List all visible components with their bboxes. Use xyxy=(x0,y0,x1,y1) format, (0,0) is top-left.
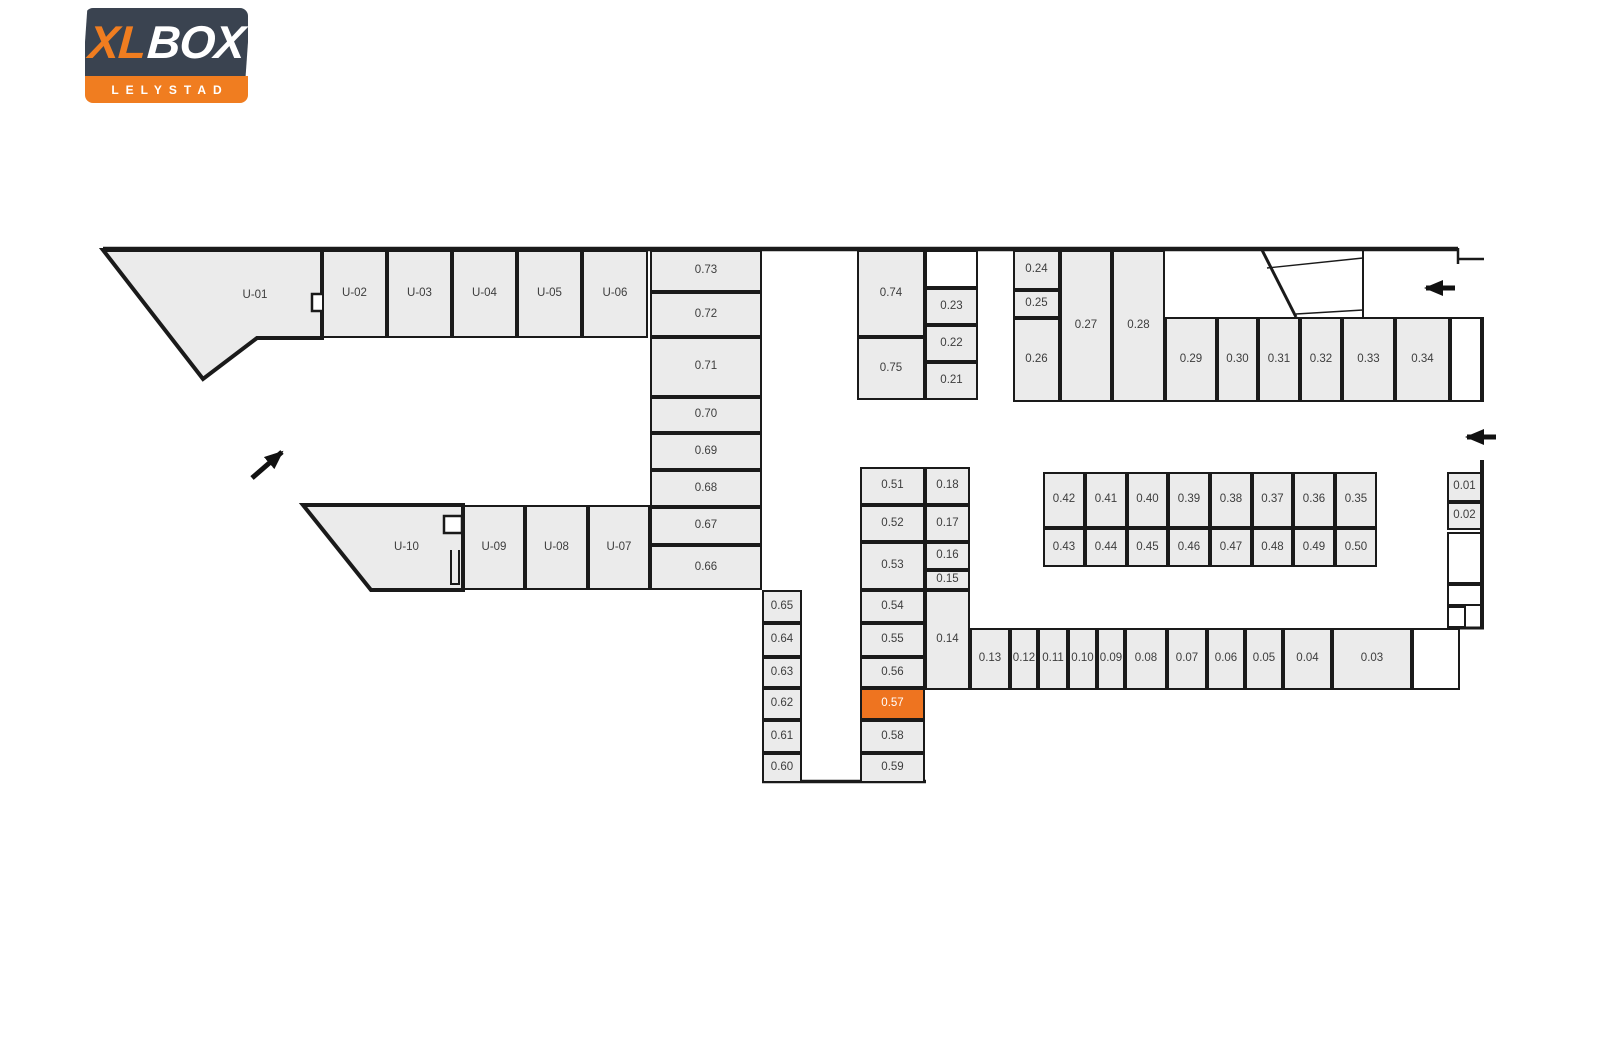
unit-label: 0.45 xyxy=(1136,542,1158,554)
unit-0.08[interactable]: 0.08 xyxy=(1125,628,1167,690)
unit-label: 0.48 xyxy=(1261,542,1283,554)
unit-label: 0.51 xyxy=(881,480,903,492)
unit-label: 0.44 xyxy=(1095,542,1117,554)
unit-label: 0.62 xyxy=(771,698,793,710)
corridor-cell xyxy=(925,250,978,288)
unit-0.15[interactable]: 0.15 xyxy=(925,570,970,590)
unit-0.61[interactable]: 0.61 xyxy=(762,720,802,753)
unit-label: 0.69 xyxy=(695,446,717,458)
unit-label: 0.49 xyxy=(1303,542,1325,554)
unit-label: U-07 xyxy=(607,542,632,554)
unit-label: 0.53 xyxy=(881,560,903,572)
corridor-cell xyxy=(1412,628,1460,690)
unit-label: 0.70 xyxy=(695,409,717,421)
unit-0.22[interactable]: 0.22 xyxy=(925,325,978,362)
unit-label: 0.29 xyxy=(1180,354,1202,366)
unit-U-04[interactable]: U-04 xyxy=(452,250,517,338)
unit-0.10[interactable]: 0.10 xyxy=(1068,628,1097,690)
unit-0.69[interactable]: 0.69 xyxy=(650,433,762,470)
unit-label: 0.39 xyxy=(1178,494,1200,506)
unit-U-01[interactable]: U-01 xyxy=(190,252,320,340)
unit-0.09[interactable]: 0.09 xyxy=(1097,628,1125,690)
unit-label: 0.27 xyxy=(1075,320,1097,332)
unit-0.75[interactable]: 0.75 xyxy=(857,337,925,400)
unit-0.27[interactable]: 0.27 xyxy=(1060,250,1112,402)
unit-0.60[interactable]: 0.60 xyxy=(762,753,802,783)
unit-0.51[interactable]: 0.51 xyxy=(860,467,925,505)
unit-0.38[interactable]: 0.38 xyxy=(1210,472,1252,528)
unit-label: 0.58 xyxy=(881,731,903,743)
unit-label: U-05 xyxy=(537,288,562,300)
unit-0.65[interactable]: 0.65 xyxy=(762,590,802,623)
unit-label: 0.64 xyxy=(771,634,793,646)
unit-label: 0.55 xyxy=(881,634,903,646)
unit-label: 0.35 xyxy=(1345,494,1367,506)
unit-0.16[interactable]: 0.16 xyxy=(925,542,970,570)
unit-label: 0.15 xyxy=(936,574,958,586)
unit-0.52[interactable]: 0.52 xyxy=(860,505,925,542)
unit-0.59[interactable]: 0.59 xyxy=(860,753,925,783)
unit-0.35[interactable]: 0.35 xyxy=(1335,472,1377,528)
unit-0.33[interactable]: 0.33 xyxy=(1342,317,1395,402)
unit-label: 0.32 xyxy=(1310,354,1332,366)
unit-U-08[interactable]: U-08 xyxy=(525,505,588,590)
unit-label: 0.01 xyxy=(1453,481,1475,493)
unit-label: 0.50 xyxy=(1345,542,1367,554)
unit-0.50[interactable]: 0.50 xyxy=(1335,528,1377,567)
unit-0.44[interactable]: 0.44 xyxy=(1085,528,1127,567)
unit-U-03[interactable]: U-03 xyxy=(387,250,452,338)
unit-label: 0.31 xyxy=(1268,354,1290,366)
unit-0.39[interactable]: 0.39 xyxy=(1168,472,1210,528)
unit-label: 0.16 xyxy=(936,550,958,562)
unit-0.05[interactable]: 0.05 xyxy=(1245,628,1283,690)
unit-label: U-02 xyxy=(342,288,367,300)
unit-0.49[interactable]: 0.49 xyxy=(1293,528,1335,567)
unit-label: 0.37 xyxy=(1261,494,1283,506)
unit-0.24[interactable]: 0.24 xyxy=(1013,250,1060,290)
unit-label: 0.22 xyxy=(940,338,962,350)
unit-label: 0.52 xyxy=(881,518,903,530)
unit-label: 0.26 xyxy=(1025,354,1047,366)
unit-label: 0.13 xyxy=(979,653,1001,665)
unit-0.06[interactable]: 0.06 xyxy=(1207,628,1245,690)
unit-0.30[interactable]: 0.30 xyxy=(1217,317,1258,402)
unit-0.40[interactable]: 0.40 xyxy=(1127,472,1168,528)
unit-label: 0.67 xyxy=(695,520,717,532)
unit-label: U-01 xyxy=(243,290,268,302)
unit-0.43[interactable]: 0.43 xyxy=(1043,528,1085,567)
unit-label: U-10 xyxy=(394,542,419,554)
unit-0.28[interactable]: 0.28 xyxy=(1112,250,1165,402)
unit-0.55[interactable]: 0.55 xyxy=(860,623,925,657)
unit-0.34[interactable]: 0.34 xyxy=(1395,317,1450,402)
corridor-cell xyxy=(1450,317,1482,402)
unit-0.26[interactable]: 0.26 xyxy=(1013,318,1060,402)
unit-0.53[interactable]: 0.53 xyxy=(860,542,925,590)
unit-0.46[interactable]: 0.46 xyxy=(1168,528,1210,567)
unit-label: 0.71 xyxy=(695,361,717,373)
unit-label: U-04 xyxy=(472,288,497,300)
unit-0.62[interactable]: 0.62 xyxy=(762,688,802,720)
unit-0.68[interactable]: 0.68 xyxy=(650,470,762,507)
unit-0.58[interactable]: 0.58 xyxy=(860,720,925,753)
unit-U-02[interactable]: U-02 xyxy=(322,250,387,338)
unit-0.29[interactable]: 0.29 xyxy=(1165,317,1217,402)
unit-label: 0.63 xyxy=(771,667,793,679)
unit-label: 0.11 xyxy=(1042,653,1064,665)
unit-label: 0.40 xyxy=(1136,494,1158,506)
unit-label: 0.74 xyxy=(880,288,902,300)
unit-label: 0.73 xyxy=(695,265,717,277)
unit-label: 0.36 xyxy=(1303,494,1325,506)
unit-label: 0.14 xyxy=(936,634,958,646)
unit-label: 0.09 xyxy=(1100,653,1122,665)
unit-0.02[interactable]: 0.02 xyxy=(1447,502,1482,530)
unit-label: 0.66 xyxy=(695,562,717,574)
unit-label: 0.75 xyxy=(880,363,902,375)
unit-label: U-03 xyxy=(407,288,432,300)
unit-0.63[interactable]: 0.63 xyxy=(762,657,802,688)
unit-label: 0.28 xyxy=(1127,320,1149,332)
unit-0.32[interactable]: 0.32 xyxy=(1300,317,1342,402)
unit-label: U-09 xyxy=(482,542,507,554)
unit-0.14[interactable]: 0.14 xyxy=(925,590,970,690)
unit-label: 0.18 xyxy=(936,480,958,492)
unit-U-06[interactable]: U-06 xyxy=(582,250,648,338)
corridor-cell xyxy=(1447,584,1482,606)
unit-label: 0.07 xyxy=(1176,653,1198,665)
unit-0.04[interactable]: 0.04 xyxy=(1283,628,1332,690)
unit-0.66[interactable]: 0.66 xyxy=(650,545,762,590)
unit-0.45[interactable]: 0.45 xyxy=(1127,528,1168,567)
unit-U-05[interactable]: U-05 xyxy=(517,250,582,338)
unit-label: 0.30 xyxy=(1226,354,1248,366)
unit-label: 0.59 xyxy=(881,762,903,774)
unit-label: 0.65 xyxy=(771,601,793,613)
unit-0.71[interactable]: 0.71 xyxy=(650,337,762,397)
unit-0.67[interactable]: 0.67 xyxy=(650,507,762,545)
unit-U-07[interactable]: U-07 xyxy=(588,505,650,590)
unit-label: 0.23 xyxy=(940,301,962,313)
unit-0.12[interactable]: 0.12 xyxy=(1010,628,1038,690)
unit-0.25[interactable]: 0.25 xyxy=(1013,290,1060,318)
unit-label: 0.41 xyxy=(1095,494,1117,506)
ramp-lines xyxy=(1262,250,1363,317)
unit-0.11[interactable]: 0.11 xyxy=(1038,628,1068,690)
unit-label: 0.42 xyxy=(1053,494,1075,506)
unit-0.57[interactable]: 0.57 xyxy=(860,688,925,720)
unit-label: 0.57 xyxy=(881,698,903,710)
unit-label: 0.43 xyxy=(1053,542,1075,554)
unit-0.70[interactable]: 0.70 xyxy=(650,397,762,433)
unit-0.31[interactable]: 0.31 xyxy=(1258,317,1300,402)
unit-0.41[interactable]: 0.41 xyxy=(1085,472,1127,528)
entrance-arrow-ne-icon xyxy=(252,452,282,478)
unit-label: 0.33 xyxy=(1357,354,1379,366)
unit-label: 0.72 xyxy=(695,309,717,321)
unit-label: 0.05 xyxy=(1253,653,1275,665)
unit-label: 0.34 xyxy=(1411,354,1433,366)
unit-0.74[interactable]: 0.74 xyxy=(857,250,925,337)
unit-label: 0.03 xyxy=(1361,653,1383,665)
unit-0.48[interactable]: 0.48 xyxy=(1252,528,1293,567)
unit-label: 0.38 xyxy=(1220,494,1242,506)
unit-0.36[interactable]: 0.36 xyxy=(1293,472,1335,528)
unit-label: 0.21 xyxy=(940,375,962,387)
unit-0.18[interactable]: 0.18 xyxy=(925,467,970,505)
unit-label: 0.25 xyxy=(1025,298,1047,310)
unit-label: 0.60 xyxy=(771,762,793,774)
unit-0.42[interactable]: 0.42 xyxy=(1043,472,1085,528)
unit-0.73[interactable]: 0.73 xyxy=(650,250,762,292)
unit-label: 0.02 xyxy=(1453,510,1475,522)
unit-label: 0.04 xyxy=(1296,653,1318,665)
unit-label: 0.12 xyxy=(1013,653,1035,665)
corridor-cell xyxy=(1447,606,1466,628)
unit-label: 0.61 xyxy=(771,731,793,743)
unit-label: 0.54 xyxy=(881,601,903,613)
unit-label: 0.47 xyxy=(1220,542,1242,554)
unit-label: 0.06 xyxy=(1215,653,1237,665)
unit-0.21[interactable]: 0.21 xyxy=(925,362,978,400)
unit-0.17[interactable]: 0.17 xyxy=(925,505,970,542)
floorplan-page: XLBOX LELYSTAD xyxy=(0,0,1600,1040)
unit-label: 0.46 xyxy=(1178,542,1200,554)
unit-U-09[interactable]: U-09 xyxy=(463,505,525,590)
unit-0.23[interactable]: 0.23 xyxy=(925,288,978,325)
unit-label: 0.56 xyxy=(881,667,903,679)
unit-0.07[interactable]: 0.07 xyxy=(1167,628,1207,690)
unit-label: 0.24 xyxy=(1025,264,1047,276)
unit-label: U-06 xyxy=(603,288,628,300)
unit-0.47[interactable]: 0.47 xyxy=(1210,528,1252,567)
unit-0.01[interactable]: 0.01 xyxy=(1447,472,1482,502)
unit-0.03[interactable]: 0.03 xyxy=(1332,628,1412,690)
corridor-cell xyxy=(1447,532,1482,584)
unit-label: 0.08 xyxy=(1135,653,1157,665)
unit-0.54[interactable]: 0.54 xyxy=(860,590,925,623)
unit-0.64[interactable]: 0.64 xyxy=(762,623,802,657)
unit-U-10[interactable]: U-10 xyxy=(350,505,463,590)
unit-label: 0.10 xyxy=(1071,653,1093,665)
unit-0.72[interactable]: 0.72 xyxy=(650,292,762,337)
unit-label: U-08 xyxy=(544,542,569,554)
unit-0.37[interactable]: 0.37 xyxy=(1252,472,1293,528)
unit-0.56[interactable]: 0.56 xyxy=(860,657,925,688)
unit-0.13[interactable]: 0.13 xyxy=(970,628,1010,690)
unit-label: 0.17 xyxy=(936,518,958,530)
unit-label: 0.68 xyxy=(695,483,717,495)
